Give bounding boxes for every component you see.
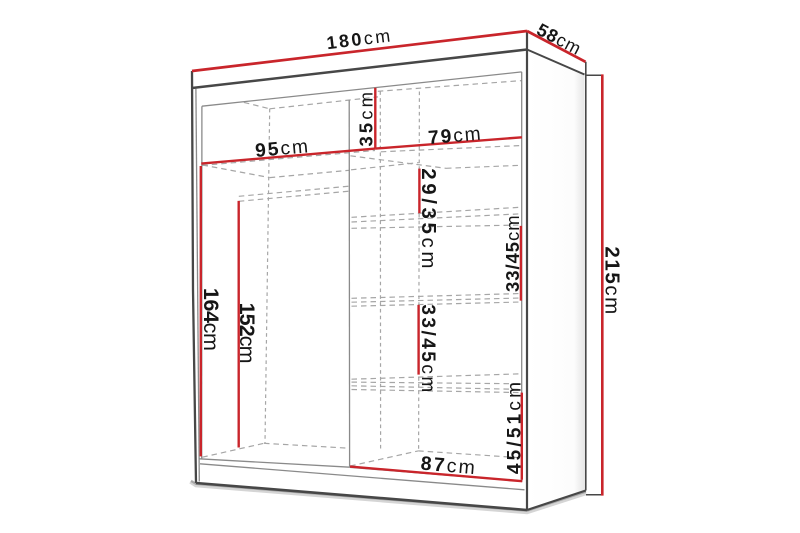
- svg-text:33/45cm: 33/45cm: [417, 304, 438, 394]
- svg-text:164cm: 164cm: [199, 288, 223, 351]
- svg-text:29/35cm: 29/35cm: [417, 168, 440, 272]
- svg-text:45/51cm: 45/51cm: [505, 379, 526, 474]
- svg-text:33/45cm: 33/45cm: [502, 214, 523, 292]
- svg-text:152cm: 152cm: [235, 303, 259, 363]
- svg-text:35cm: 35cm: [356, 89, 377, 147]
- svg-text:215cm: 215cm: [600, 246, 623, 316]
- svg-text:87cm: 87cm: [420, 453, 478, 480]
